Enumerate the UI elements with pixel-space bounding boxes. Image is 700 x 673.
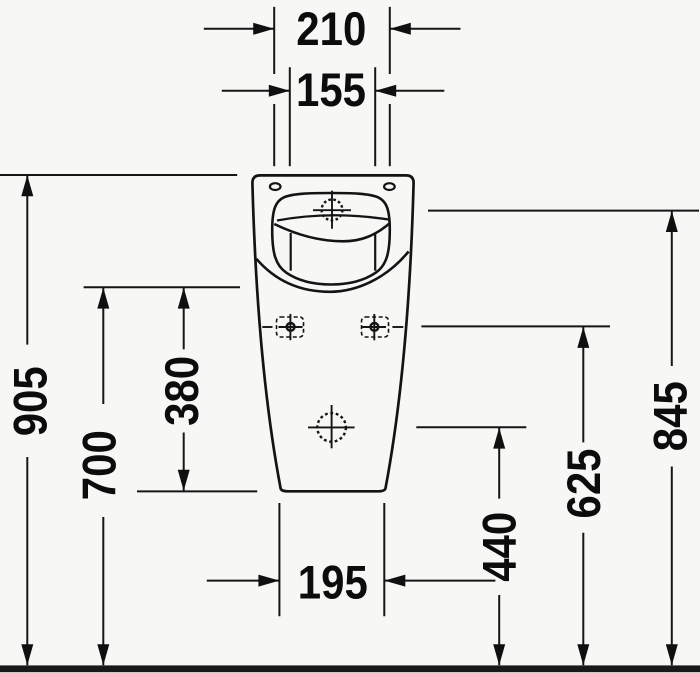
svg-text:625: 625	[557, 449, 610, 519]
svg-text:905: 905	[3, 366, 56, 436]
svg-text:155: 155	[296, 63, 366, 116]
svg-text:440: 440	[473, 512, 526, 582]
svg-text:380: 380	[155, 356, 208, 426]
svg-text:195: 195	[298, 556, 368, 609]
svg-text:700: 700	[73, 430, 126, 500]
svg-text:845: 845	[643, 381, 696, 451]
svg-text:210: 210	[296, 2, 366, 55]
